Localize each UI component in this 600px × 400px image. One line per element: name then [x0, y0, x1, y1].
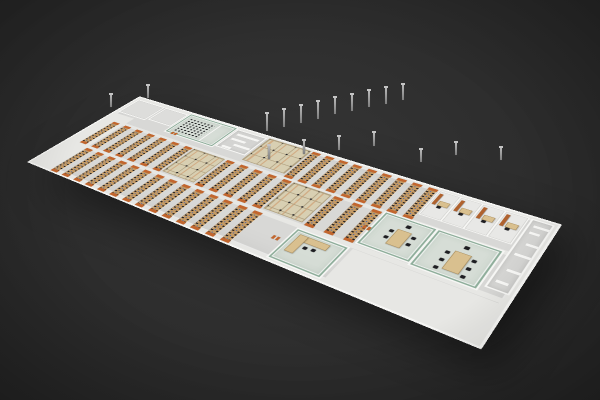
floor-slab [27, 96, 562, 349]
training-chairs [173, 118, 216, 138]
executive-desk [442, 251, 473, 275]
executive-chair [463, 246, 470, 251]
guest-chair [459, 275, 466, 279]
meeting-chair [302, 246, 308, 250]
wall-segment [533, 225, 550, 232]
guest-chair [444, 250, 450, 254]
office-chair [480, 220, 486, 224]
south-doors [271, 235, 281, 241]
office-floor-render [0, 0, 600, 400]
wall-segment [529, 231, 541, 236]
office-chair [436, 206, 442, 209]
office-chair [458, 212, 464, 216]
wall-segment [506, 269, 521, 276]
wall-segment [495, 279, 509, 286]
meeting-desk-return [284, 234, 309, 253]
guest-chair [432, 265, 439, 269]
wall-segment [230, 138, 246, 144]
scene-3d-wrapper [0, 0, 600, 400]
office-chair [504, 227, 510, 231]
guest-chair [438, 257, 444, 261]
wall-segment [221, 145, 232, 150]
executive-chair [405, 225, 412, 229]
guest-chair [471, 259, 477, 263]
guest-chair [405, 243, 411, 247]
guest-chair [465, 267, 472, 271]
conference-doors [170, 132, 178, 136]
wall-segment [514, 253, 532, 261]
guest-chair [410, 237, 416, 241]
wall-segment [233, 144, 251, 151]
wall-segment [525, 243, 538, 249]
meeting-chair [310, 248, 316, 252]
